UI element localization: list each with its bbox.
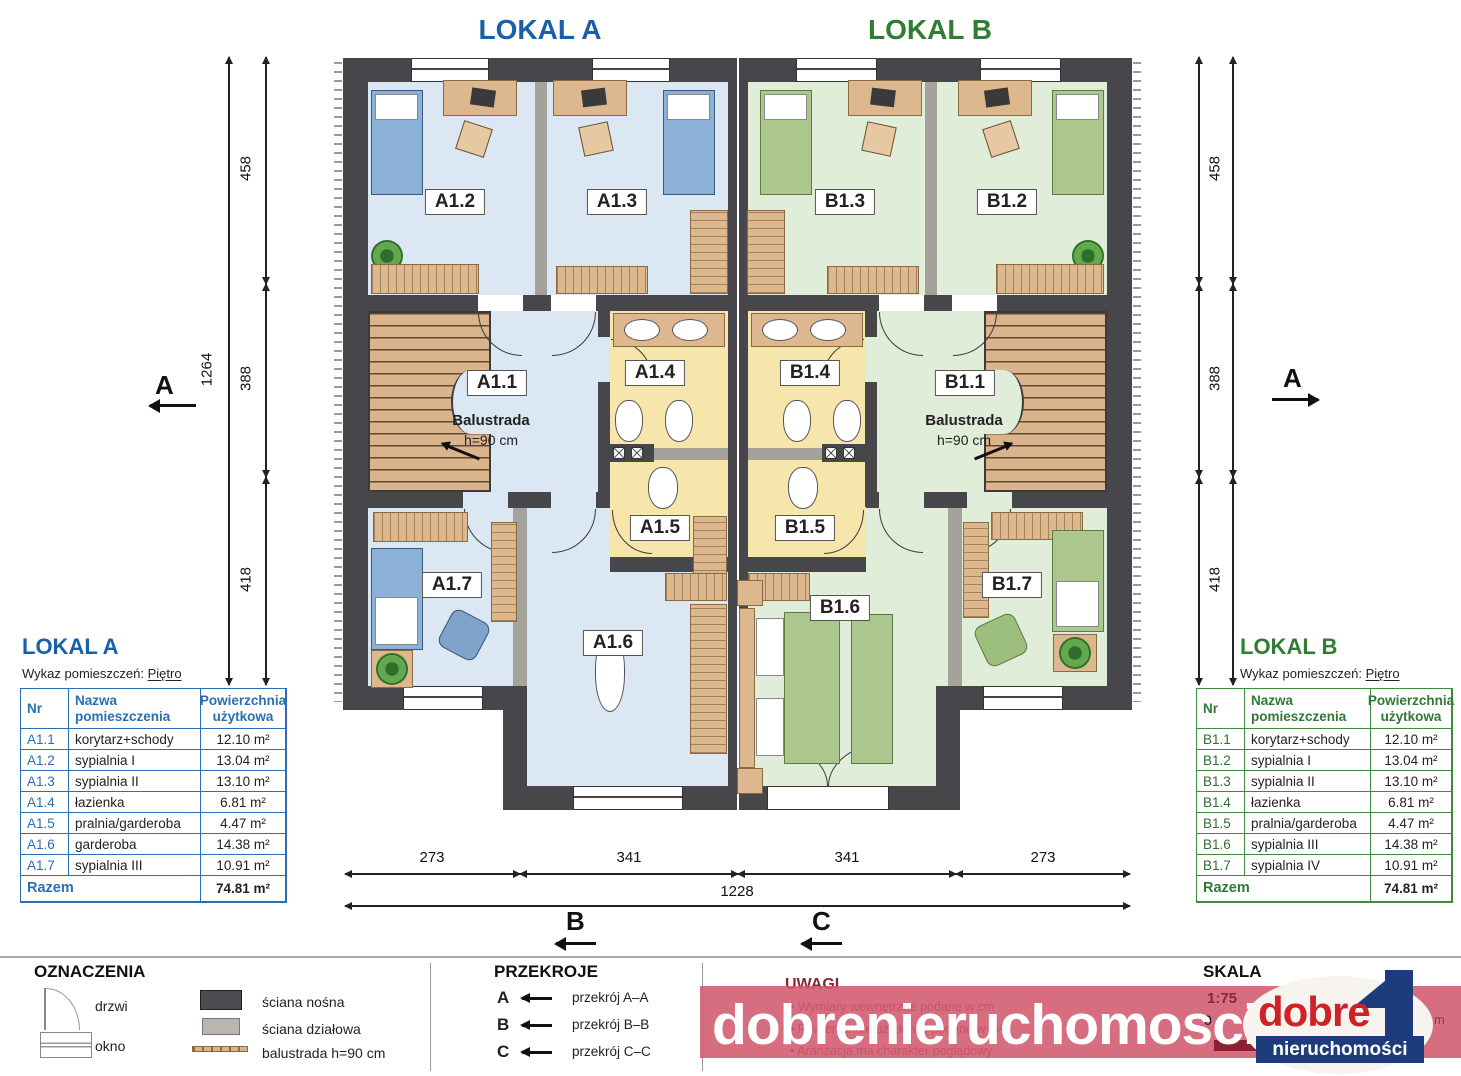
- room-label-b16: B1.6: [810, 595, 870, 621]
- balcony-door: [767, 786, 889, 810]
- cell-area: 10.91 m²: [201, 855, 286, 876]
- washing-machine: [825, 447, 837, 459]
- dim-label: 458: [1207, 137, 1224, 201]
- dryer: [843, 447, 855, 459]
- cell-area: 6.81 m²: [1371, 792, 1452, 813]
- bed: [784, 612, 840, 764]
- bed: [371, 548, 423, 650]
- section-arrow-icon: [522, 997, 552, 1000]
- dim-label: 458: [238, 137, 255, 201]
- partition-a12-a13: [535, 82, 547, 295]
- cell-name: łazienka: [1245, 792, 1371, 813]
- window: [573, 786, 683, 810]
- table-b-subtitle: Wykaz pomieszczeń: Piętro: [1240, 666, 1400, 681]
- cell-nr: B1.6: [1197, 834, 1245, 855]
- wardrobe: [690, 604, 727, 754]
- bed: [1052, 530, 1104, 632]
- room-label-b13: B1.3: [815, 189, 875, 215]
- cell-nr: B1.1: [1197, 729, 1245, 750]
- subtitle-prefix: Wykaz pomieszczeń:: [22, 666, 148, 681]
- dimension-line: [738, 873, 956, 875]
- wall-segment: [368, 492, 463, 508]
- total-label: Razem: [21, 876, 201, 902]
- total-value: 74.81 m²: [201, 876, 286, 902]
- plant: [1059, 637, 1091, 669]
- dim-label: 1264: [199, 338, 216, 402]
- section-arrow-icon: [522, 1051, 552, 1054]
- vanity-counter: [751, 313, 863, 347]
- sink: [762, 319, 798, 341]
- shelf: [491, 522, 517, 622]
- dimension-line: [265, 477, 267, 685]
- cell-name: łazienka: [69, 792, 201, 813]
- toilet: [615, 400, 643, 442]
- wall-segment: [596, 295, 728, 311]
- window-icon: [40, 1032, 92, 1058]
- balustrada-title: Balustrada: [908, 412, 1020, 429]
- dim-label: 388: [238, 347, 255, 411]
- window: [411, 58, 489, 82]
- col-header: Nr: [1197, 689, 1245, 729]
- dim-label: 388: [1207, 347, 1224, 411]
- dim-label: 341: [812, 849, 882, 866]
- legend-label-bearing-wall: ściana nośna: [262, 994, 345, 1010]
- section-arrow-c-icon: [802, 942, 842, 945]
- pillow: [756, 698, 784, 756]
- cell-nr: A1.7: [21, 855, 69, 876]
- wardrobe: [371, 264, 479, 294]
- dimension-line: [1232, 284, 1234, 477]
- bed: [760, 90, 812, 195]
- table-a-title: LOKAL A: [22, 634, 119, 660]
- table-a-subtitle: Wykaz pomieszczeń: Piętro: [22, 666, 182, 681]
- cell-name: pralnia/garderoba: [69, 813, 201, 834]
- floor-plan-page: LOKAL A LOKAL B: [0, 0, 1461, 1076]
- cell-name: sypialnia III: [69, 855, 201, 876]
- cell-name: sypialnia IV: [1245, 855, 1371, 876]
- vanity-counter: [613, 313, 725, 347]
- bed-headboard: [739, 608, 755, 768]
- door-icon: [46, 988, 80, 1030]
- sink: [624, 319, 660, 341]
- balustrada-title: Balustrada: [435, 412, 547, 429]
- room-label-a17: A1.7: [422, 572, 482, 598]
- logo-text-bottom: nieruchomości: [1256, 1036, 1424, 1063]
- total-label: Razem: [1197, 876, 1371, 902]
- cell-area: 13.10 m²: [1371, 771, 1452, 792]
- cell-area: 12.10 m²: [201, 729, 286, 750]
- room-label-b15: B1.5: [775, 515, 835, 541]
- exterior-mask-right: [960, 710, 1142, 824]
- wall-segment: [748, 295, 879, 311]
- dimension-line: [265, 57, 267, 284]
- exterior-mask-left: [333, 710, 505, 824]
- table-lokal-b: Nr Nazwa pomieszczenia Powierzchnia użyt…: [1196, 688, 1453, 903]
- wall-segment: [368, 295, 478, 311]
- pillow: [1056, 94, 1099, 120]
- bed: [1052, 90, 1104, 195]
- legend-divider: [430, 963, 431, 1071]
- window: [592, 58, 670, 82]
- desk: [443, 80, 517, 116]
- balustrada-note-a: Balustrada h=90 cm: [435, 412, 547, 448]
- toilet: [788, 467, 818, 509]
- subtitle-prefix: Wykaz pomieszczeń:: [1240, 666, 1366, 681]
- table-b-title: LOKAL B: [1240, 634, 1337, 660]
- cell-area: 13.10 m²: [201, 771, 286, 792]
- cell-nr: A1.1: [21, 729, 69, 750]
- legend-label-window: okno: [95, 1038, 125, 1054]
- bed: [851, 614, 893, 764]
- section-arrow-left-icon: [150, 404, 196, 407]
- dim-label: 273: [397, 849, 467, 866]
- dimension-line: [1198, 477, 1200, 685]
- cell-area: 14.38 m²: [201, 834, 286, 855]
- wall-segment: [997, 295, 1107, 311]
- dimension-line: [520, 873, 738, 875]
- dimension-line: [265, 284, 267, 477]
- washer-strip: [822, 444, 866, 462]
- section-marker-a-left: A: [155, 370, 174, 401]
- dimension-line-total-bottom: [345, 905, 1130, 907]
- subtitle-floor: Piętro: [148, 666, 182, 681]
- sections-heading: PRZEKROJE: [494, 962, 598, 982]
- section-row-letter: B: [497, 1015, 509, 1035]
- desk: [958, 80, 1032, 116]
- wardrobe: [665, 573, 727, 601]
- cell-area: 4.47 m²: [1371, 813, 1452, 834]
- wardrobe: [690, 210, 728, 294]
- room-label-a16: A1.6: [583, 630, 643, 656]
- load-bearing-wall-icon: [200, 990, 242, 1010]
- cell-area: 6.81 m²: [201, 792, 286, 813]
- cell-nr: B1.3: [1197, 771, 1245, 792]
- room-label-b11: B1.1: [935, 370, 995, 396]
- shelf: [963, 522, 989, 618]
- laptop: [470, 87, 496, 107]
- pillow: [375, 94, 418, 120]
- section-row-letter: A: [497, 988, 509, 1008]
- section-marker-a-right: A: [1283, 363, 1302, 394]
- cell-area: 10.91 m²: [1371, 855, 1452, 876]
- col-header: Nr: [21, 689, 69, 729]
- sink: [672, 319, 708, 341]
- section-marker-b: B: [566, 906, 585, 937]
- subtitle-floor: Piętro: [1366, 666, 1400, 681]
- nightstand: [737, 580, 763, 606]
- bed: [663, 90, 715, 195]
- cell-nr: B1.5: [1197, 813, 1245, 834]
- title-lokal-b: LOKAL B: [835, 14, 1025, 46]
- cell-name: korytarz+schody: [1245, 729, 1371, 750]
- cell-nr: A1.5: [21, 813, 69, 834]
- logo-one-icon: [1385, 970, 1413, 1044]
- wardrobe: [996, 264, 1104, 294]
- dim-label: 341: [594, 849, 664, 866]
- toilet: [833, 400, 861, 442]
- legend-heading: OZNACZENIA: [34, 962, 145, 982]
- laptop: [870, 88, 896, 108]
- blanket: [375, 597, 418, 645]
- section-arrow-right-icon: [1272, 398, 1318, 401]
- dimension-line: [1198, 284, 1200, 477]
- toilet: [665, 400, 693, 442]
- insulation-hatch-left: [334, 62, 342, 702]
- cell-area: 14.38 m²: [1371, 834, 1452, 855]
- wall-segment: [508, 492, 551, 508]
- bookshelf: [373, 512, 468, 542]
- wall-segment: [865, 295, 877, 337]
- cell-name: sypialnia II: [69, 771, 201, 792]
- partition-b16-b17: [948, 508, 962, 686]
- room-label-b14: B1.4: [780, 360, 840, 386]
- partition-wall-icon: [202, 1018, 240, 1035]
- cell-area: 13.04 m²: [201, 750, 286, 771]
- room-label-a14: A1.4: [625, 360, 685, 386]
- legend-label-door: drzwi: [95, 998, 128, 1014]
- wall-b15-bottom: [748, 557, 866, 572]
- cell-name: sypialnia III: [1245, 834, 1371, 855]
- wall-segment: [924, 295, 952, 311]
- cell-nr: A1.2: [21, 750, 69, 771]
- dimension-line: [1198, 57, 1200, 284]
- room-label-b17: B1.7: [982, 572, 1042, 598]
- legend-separator: [0, 956, 1461, 958]
- dimension-line: [345, 873, 520, 875]
- cell-nr: B1.2: [1197, 750, 1245, 771]
- room-label-a15: A1.5: [630, 515, 690, 541]
- dimension-line-total-left: [228, 57, 230, 685]
- wall-segment: [924, 492, 967, 508]
- washing-machine: [613, 447, 625, 459]
- washer-strip: [610, 444, 654, 462]
- scale-unit: m: [1434, 1012, 1445, 1027]
- wall-segment: [523, 295, 551, 311]
- toilet: [783, 400, 811, 442]
- plant: [376, 653, 408, 685]
- partition-b13-b12: [925, 82, 937, 295]
- cell-name: garderoba: [69, 834, 201, 855]
- pillow: [756, 618, 784, 676]
- dim-label: 418: [1207, 548, 1224, 612]
- sink: [810, 319, 846, 341]
- col-header: Powierzchnia użytkowa: [201, 689, 286, 729]
- desk: [848, 80, 922, 116]
- scale-heading: SKALA: [1203, 962, 1262, 982]
- wall-left: [343, 58, 368, 710]
- wardrobe: [747, 210, 785, 294]
- section-marker-c: C: [812, 906, 831, 937]
- floor-plan: Balustrada h=90 cm Balustrada h=90 cm A1…: [343, 52, 1132, 824]
- wall-right: [1107, 58, 1132, 710]
- cell-name: sypialnia I: [69, 750, 201, 771]
- cell-name: korytarz+schody: [69, 729, 201, 750]
- section-row-label: przekrój A–A: [572, 990, 649, 1005]
- dimension-line: [1232, 477, 1234, 685]
- wall-segment: [1012, 492, 1107, 508]
- cell-nr: A1.3: [21, 771, 69, 792]
- cell-name: pralnia/garderoba: [1245, 813, 1371, 834]
- logo-text-top: dobre: [1258, 988, 1370, 1036]
- col-header: Nazwa pomieszczenia: [1245, 689, 1371, 729]
- room-label-a11: A1.1: [467, 370, 527, 396]
- room-label-a13: A1.3: [587, 189, 647, 215]
- laptop: [581, 88, 607, 108]
- laptop: [984, 87, 1010, 107]
- cell-nr: A1.6: [21, 834, 69, 855]
- dim-label: 418: [238, 548, 255, 612]
- chair: [578, 121, 614, 157]
- insulation-hatch-right: [1133, 62, 1141, 702]
- room-label-b12: B1.2: [977, 189, 1037, 215]
- cell-name: sypialnia II: [1245, 771, 1371, 792]
- table-lokal-a: Nr Nazwa pomieszczenia Powierzchnia użyt…: [20, 688, 287, 903]
- cell-nr: A1.4: [21, 792, 69, 813]
- chair: [861, 121, 897, 157]
- bed: [371, 90, 423, 195]
- section-row-letter: C: [497, 1042, 509, 1062]
- window: [403, 686, 483, 710]
- legend-label-balustrade: balustrada h=90 cm: [262, 1045, 385, 1061]
- dimension-line: [956, 873, 1130, 875]
- window: [983, 686, 1063, 710]
- wall-segment: [598, 295, 610, 337]
- cell-area: 12.10 m²: [1371, 729, 1452, 750]
- dimension-line: [1232, 57, 1234, 284]
- wardrobe: [556, 266, 648, 294]
- toilet: [648, 467, 678, 509]
- total-value: 74.81 m²: [1371, 876, 1452, 902]
- room-label-a12: A1.2: [425, 189, 485, 215]
- legend-label-partition-wall: ściana działowa: [262, 1021, 361, 1037]
- window: [980, 58, 1061, 82]
- cell-area: 4.47 m²: [201, 813, 286, 834]
- blanket: [1056, 581, 1099, 627]
- cell-nr: B1.4: [1197, 792, 1245, 813]
- wall-segment: [865, 382, 877, 507]
- dryer: [631, 447, 643, 459]
- dim-label: 1228: [702, 883, 772, 900]
- dim-label: 273: [1008, 849, 1078, 866]
- section-arrow-b-icon: [556, 942, 596, 945]
- cell-nr: B1.7: [1197, 855, 1245, 876]
- section-arrow-icon: [522, 1024, 552, 1027]
- section-row-label: przekrój C–C: [572, 1044, 651, 1059]
- wall-segment: [598, 382, 610, 507]
- desk: [553, 80, 627, 116]
- balustrade-icon: [192, 1046, 248, 1052]
- title-lokal-a: LOKAL A: [445, 14, 635, 46]
- cell-area: 13.04 m²: [1371, 750, 1452, 771]
- col-header: Powierzchnia użytkowa: [1371, 689, 1452, 729]
- pillow: [667, 94, 710, 120]
- col-header: Nazwa pomieszczenia: [69, 689, 201, 729]
- window: [796, 58, 877, 82]
- section-row-label: przekrój B–B: [572, 1017, 649, 1032]
- wardrobe: [827, 266, 919, 294]
- nightstand: [737, 768, 763, 794]
- pillow: [764, 94, 807, 120]
- cell-name: sypialnia I: [1245, 750, 1371, 771]
